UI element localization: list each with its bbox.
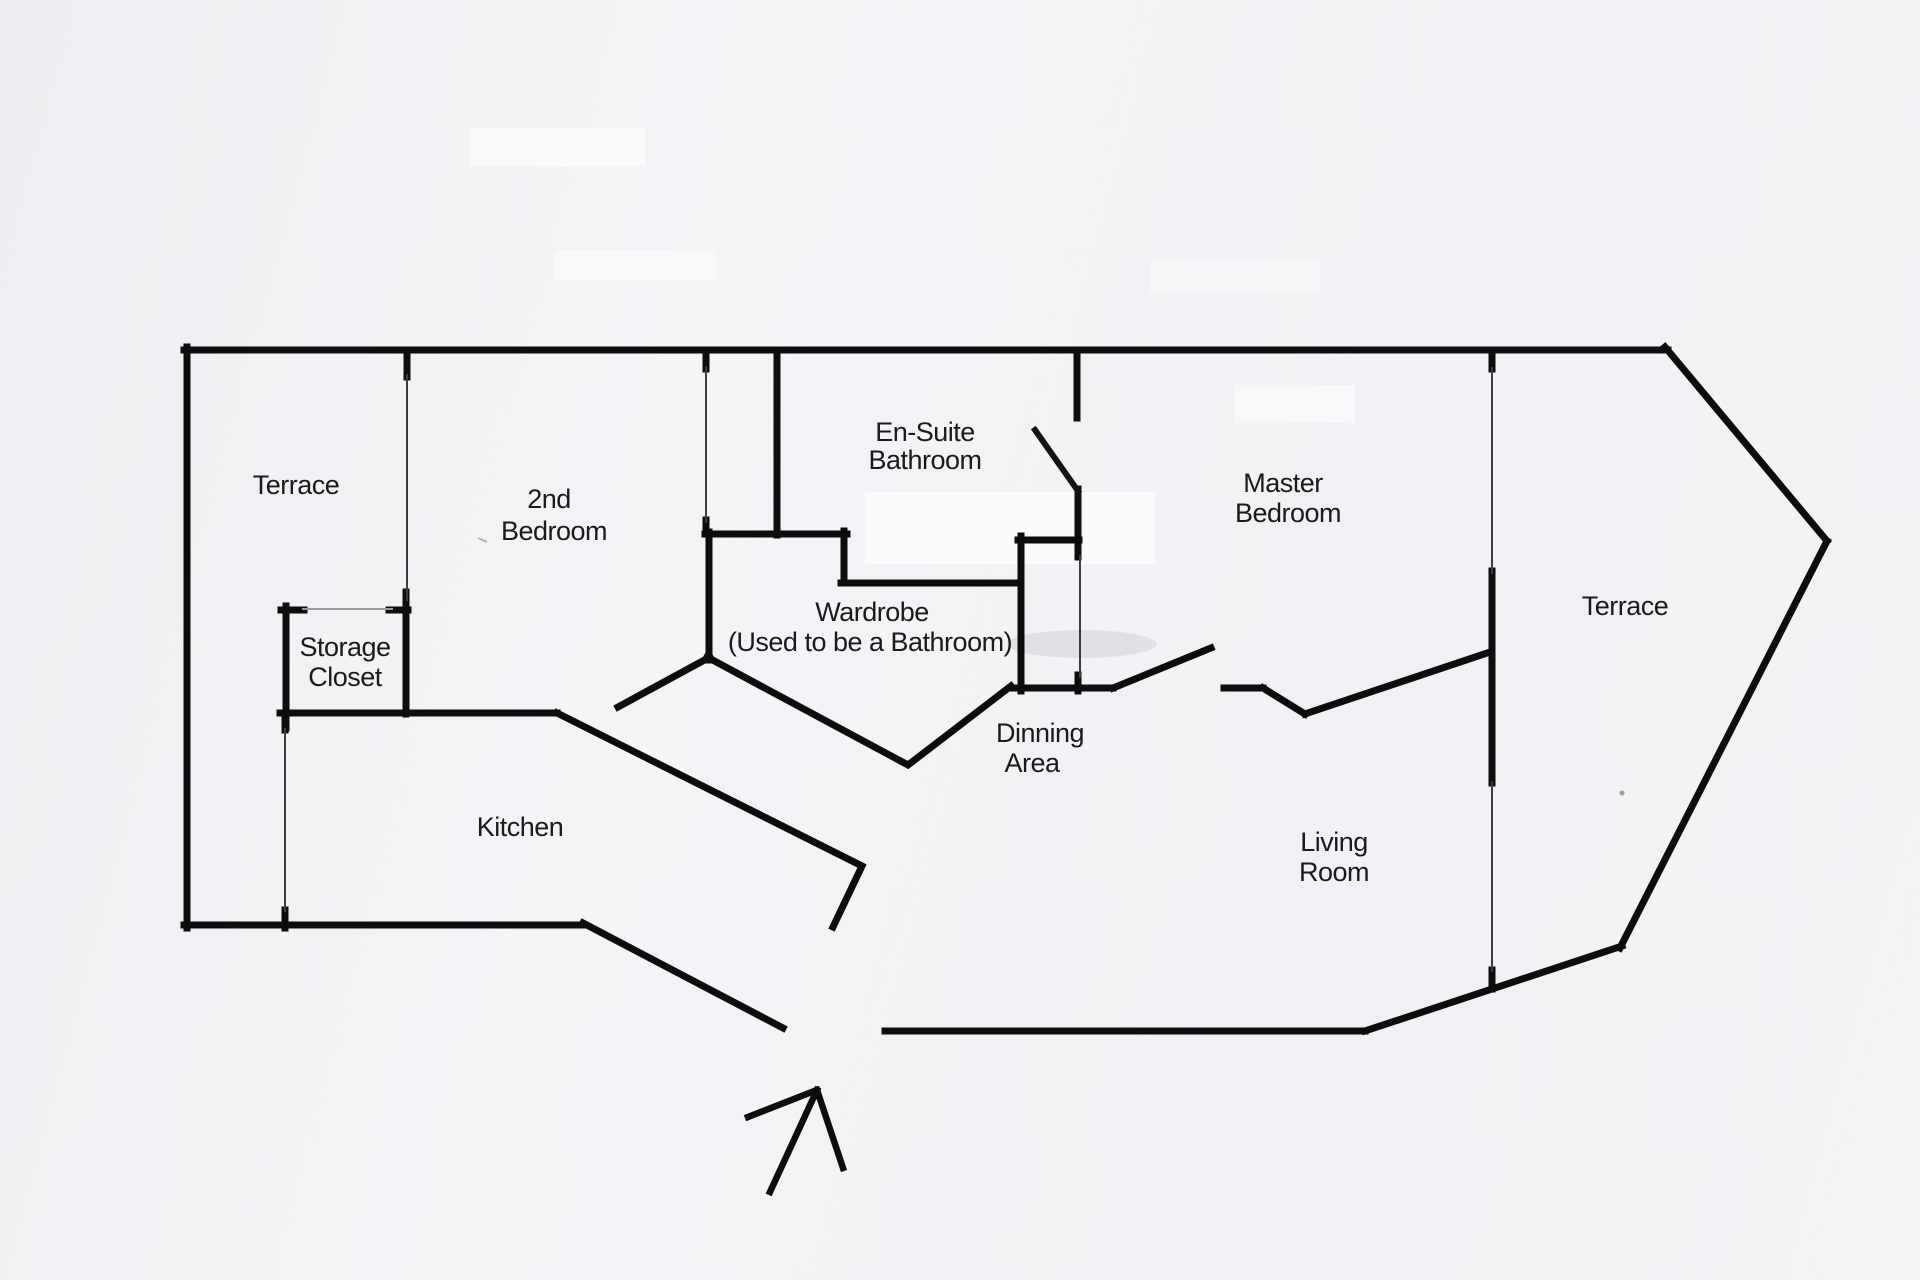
wall-hall-v <box>707 657 1011 765</box>
wall-top-right-diagonal <box>1665 347 1827 541</box>
room-label-ensuite-line2: Bathroom <box>868 445 981 475</box>
floor-plan-drawing: Terrace 2nd Bedroom En-Suite Bathroom Ma… <box>0 0 1920 1280</box>
room-label-ensuite-line1: En-Suite <box>875 417 975 447</box>
room-label-storage-closet-line1: Storage <box>299 632 390 662</box>
room-label-dining-line2: Area <box>1004 748 1061 778</box>
room-label-second-bedroom-line2: Bedroom <box>501 516 607 546</box>
room-label-living-room-line1: Living <box>1300 827 1368 857</box>
room-label-dining-line1: Dinning <box>996 718 1084 748</box>
wall-dining-diagonal <box>1113 648 1211 688</box>
wall-ensuite-door-leaf <box>1035 430 1078 491</box>
wall-living-divider-diag2 <box>1305 652 1490 714</box>
room-label-terrace-right: Terrace <box>1582 591 1669 621</box>
wall-kitchen-diagonal <box>557 713 862 927</box>
room-label-master-bedroom-line2: Bedroom <box>1235 498 1341 528</box>
wall-wardrobe-door-diagonal <box>618 657 710 707</box>
room-label-terrace-left: Terrace <box>253 470 340 500</box>
room-label-wardrobe-line1: Wardrobe <box>815 597 929 627</box>
room-labels: Terrace 2nd Bedroom En-Suite Bathroom Ma… <box>253 417 1669 887</box>
entrance-arrow-barb-right <box>817 1090 843 1168</box>
room-label-storage-closet-line2: Closet <box>308 662 383 692</box>
floor-plan: Terrace 2nd Bedroom En-Suite Bathroom Ma… <box>0 0 1920 1280</box>
room-label-master-bedroom-line1: Master <box>1243 468 1323 498</box>
room-label-living-room-line2: Room <box>1299 857 1369 887</box>
room-label-second-bedroom-line1: 2nd <box>527 484 571 514</box>
room-label-wardrobe-line2: (Used to be a Bathroom) <box>728 627 1012 657</box>
entrance-arrow-icon <box>748 1090 843 1192</box>
wall-entrance-left-diagonal <box>583 923 783 1028</box>
room-label-kitchen: Kitchen <box>477 812 564 842</box>
wall-living-divider-diag1 <box>1263 688 1305 714</box>
